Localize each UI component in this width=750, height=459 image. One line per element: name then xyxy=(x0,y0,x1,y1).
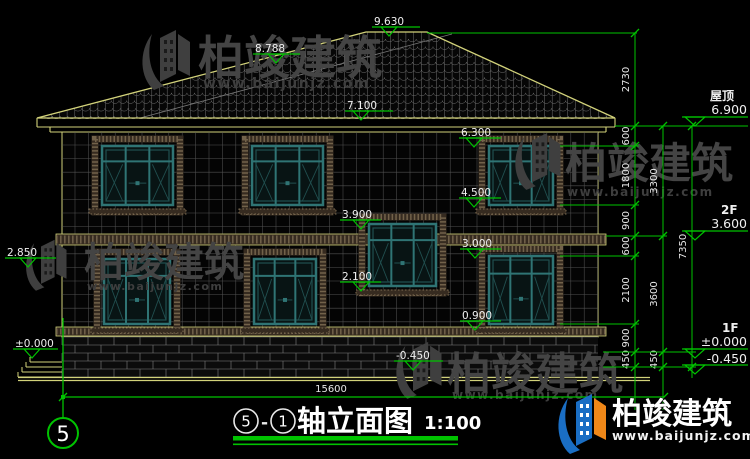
watermark-logo-icon xyxy=(558,394,606,454)
storey-label: 1F xyxy=(722,321,739,335)
watermark-url: www.baijunjz.com xyxy=(203,76,370,92)
dimension-text: 1800 xyxy=(621,163,632,188)
window xyxy=(89,139,186,214)
title-axis-right-number: 1 xyxy=(278,413,288,431)
elevation-value: 7.100 xyxy=(347,100,377,112)
watermark-url: www.baijunjz.com xyxy=(87,280,223,293)
cad-viewport[interactable]: 柏竣建筑www.baijunjz.com柏竣建筑www.baijunjz.com… xyxy=(0,0,750,459)
elevation-value: 2.100 xyxy=(342,271,372,283)
brand-name: 柏竣建筑 xyxy=(612,397,732,432)
dimension-text: 3300 xyxy=(649,168,660,193)
storey-level: 屋顶6.900 xyxy=(682,89,748,126)
dimension-text: 7350 xyxy=(678,234,689,259)
level-triangle-icon xyxy=(685,349,705,358)
elevation-value: 3.900 xyxy=(342,209,372,221)
title-text: 轴立面图 xyxy=(297,404,413,438)
elevation-value: 4.500 xyxy=(461,187,491,199)
elevation-marker: ±0.000 xyxy=(13,338,58,358)
window xyxy=(356,217,449,295)
level-triangle-icon xyxy=(685,117,705,126)
elevation-value: 2.850 xyxy=(7,247,37,259)
storey-elevation: 6.900 xyxy=(711,102,747,117)
dimension-text: 600 xyxy=(621,126,632,145)
title-scale: 1:100 xyxy=(424,413,481,434)
elevation-value: 3.000 xyxy=(462,238,492,250)
dimension-text: 450 xyxy=(649,350,660,369)
dimension-text: 900 xyxy=(621,328,632,347)
title-underline-thick xyxy=(233,436,458,441)
elevation-value: -0.450 xyxy=(396,350,430,362)
entry-steps xyxy=(18,357,62,377)
brand-logo: 柏竣建筑 www.baijunjz.com xyxy=(558,394,750,454)
elevation-value: 0.900 xyxy=(462,310,492,322)
dimension-text: 450 xyxy=(621,350,632,369)
elevation-value: 8.788 xyxy=(255,43,285,55)
watermark: 柏竣建筑www.baijunjz.com xyxy=(26,240,244,293)
storey-elevation: 3.600 xyxy=(711,216,747,231)
brand-logo-icon xyxy=(558,394,606,454)
elevation-value: 9.630 xyxy=(374,16,404,28)
title-separator: - xyxy=(261,413,268,433)
dimension-text: 900 xyxy=(621,211,632,230)
storey-label: 2F xyxy=(721,203,738,217)
dimension-text: 2730 xyxy=(621,67,632,92)
brand-url: www.baijunjz.com xyxy=(612,428,750,443)
watermark-url: www.baijunjz.com xyxy=(452,388,599,402)
storey-elevation: ±0.000 xyxy=(701,334,747,349)
storey-label: 屋顶 xyxy=(710,89,734,103)
axis-bubble-number: 5 xyxy=(56,422,69,446)
overall-dimension-text: 15600 xyxy=(315,384,347,395)
window xyxy=(241,252,329,333)
title-axis-left-number: 5 xyxy=(241,413,251,431)
drawing-title: 5 - 1 轴立面图 1:100 xyxy=(233,404,481,445)
watermark: 柏竣建筑www.baijunjz.com xyxy=(396,342,623,402)
elevation-value: 6.300 xyxy=(461,127,491,139)
level-triangle-icon xyxy=(685,365,705,374)
storey-elevation: -0.450 xyxy=(707,351,747,366)
elevation-value: ±0.000 xyxy=(15,338,54,350)
elevation-drawing: 柏竣建筑www.baijunjz.com柏竣建筑www.baijunjz.com… xyxy=(0,0,750,459)
window xyxy=(239,139,336,214)
dimension-chain: 273060018009006002100900450 xyxy=(621,29,639,410)
dimension-text: 2100 xyxy=(621,277,632,302)
level-triangle-icon xyxy=(24,349,40,358)
title-underline-thin xyxy=(233,444,458,446)
eave-fascia xyxy=(37,118,615,132)
dimension-text: 600 xyxy=(621,236,632,255)
dimension-text: 3600 xyxy=(649,281,660,306)
